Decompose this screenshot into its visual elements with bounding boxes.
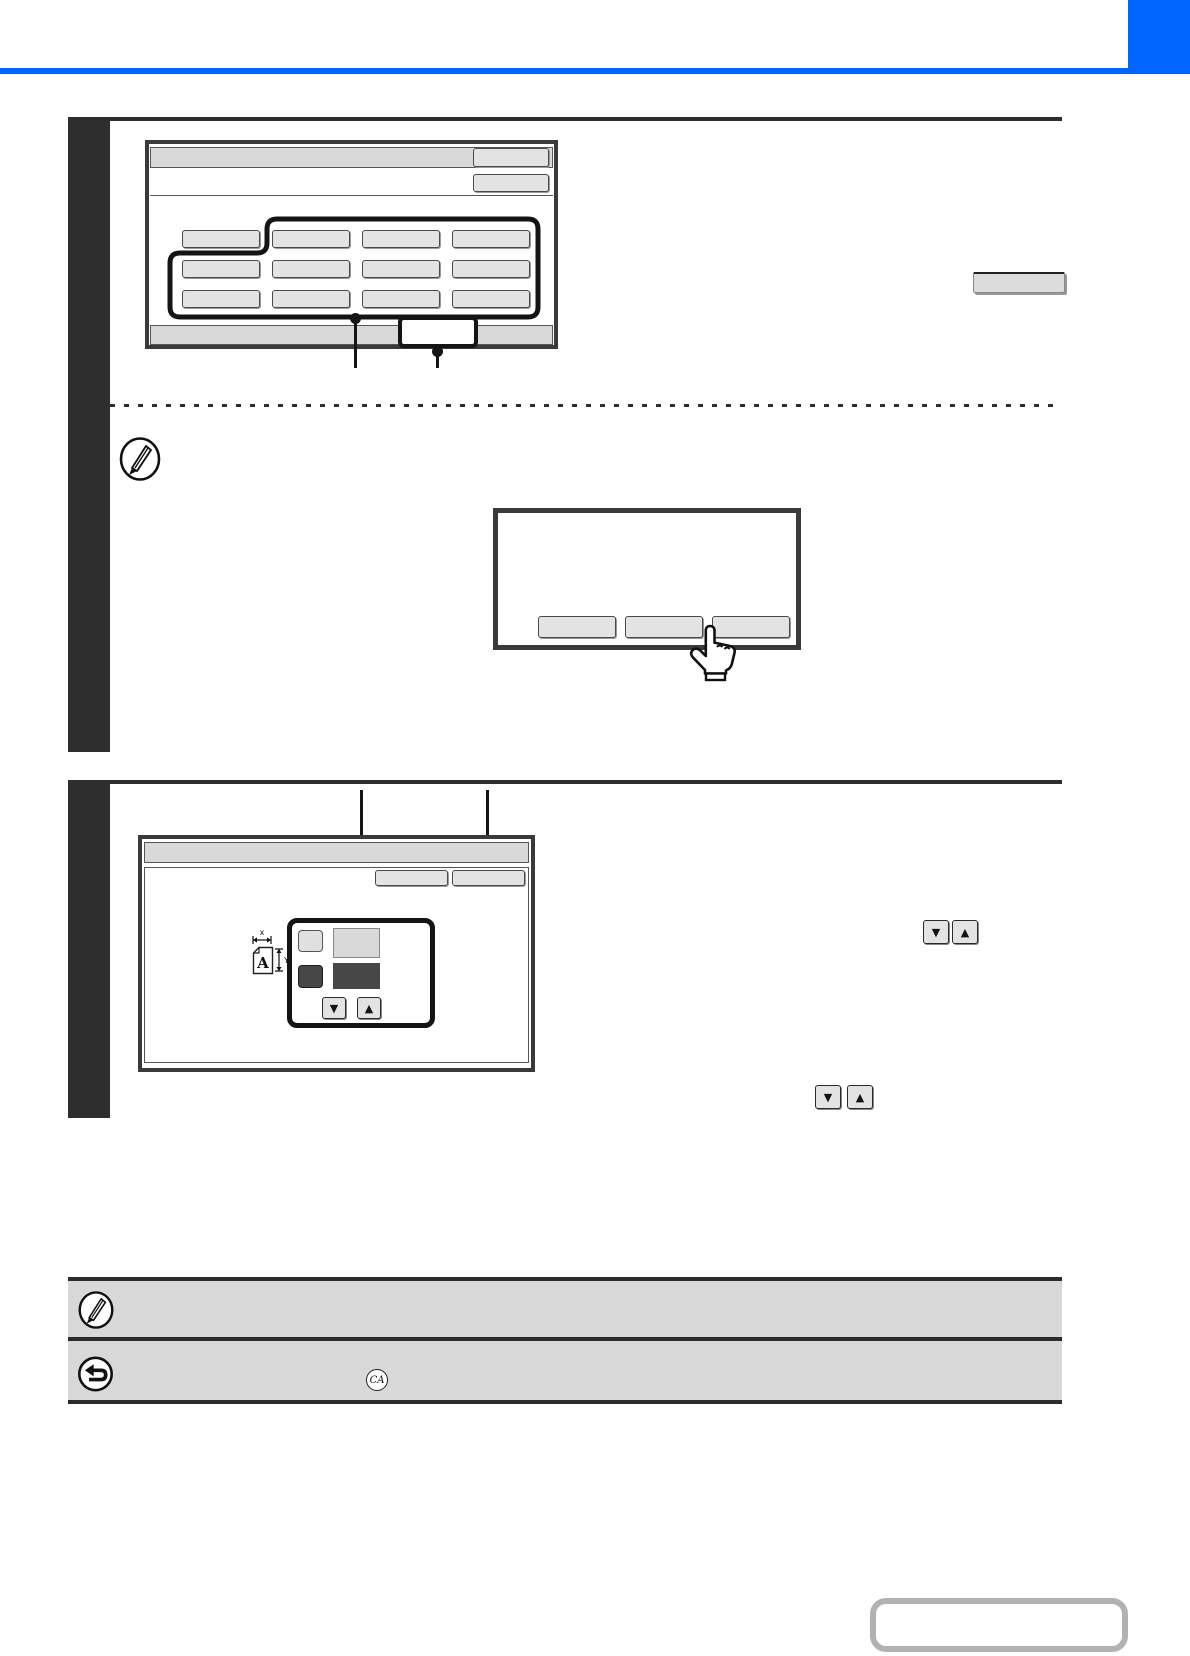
clear-all-label: CA	[370, 1375, 385, 1386]
screen-footer-bar	[150, 325, 553, 345]
message-dialog	[493, 508, 801, 650]
pencil-icon	[78, 1291, 114, 1329]
down-arrow-icon: ▼	[932, 927, 940, 938]
header-accent-rule	[0, 68, 1190, 74]
callout-line-grid	[354, 318, 357, 368]
down-arrow-icon: ▼	[330, 1003, 338, 1014]
header-accent-tab	[1128, 0, 1190, 74]
step1-rule	[68, 117, 1062, 121]
inline-up-key-2: ▲	[847, 1085, 873, 1109]
titlebar-key[interactable]	[473, 148, 549, 167]
touchscreen-size-entry: x A Y ▼ ▲	[138, 835, 535, 1072]
return-arrow-icon	[77, 1355, 114, 1393]
up-arrow-icon: ▲	[365, 1003, 373, 1014]
manual-page: x A Y ▼ ▲ ▼	[0, 0, 1190, 1656]
step2-rule	[68, 780, 1062, 784]
up-arrow-icon: ▲	[856, 1092, 864, 1103]
document-xy-icon: x A Y	[248, 926, 292, 978]
screen2-titlebar	[144, 842, 529, 863]
inline-key-reference	[973, 272, 1065, 293]
x-select-key[interactable]	[298, 930, 323, 952]
header-key-2[interactable]	[452, 870, 525, 886]
note-dashed-divider	[110, 404, 1058, 407]
down-arrow-icon: ▼	[824, 1092, 832, 1103]
y-value-display	[333, 963, 380, 989]
increase-key[interactable]: ▲	[357, 997, 381, 1019]
hand-tap-icon	[684, 624, 738, 682]
inline-down-key-2: ▼	[815, 1085, 841, 1109]
note-bar-1	[68, 1277, 1062, 1341]
inline-up-key-1: ▲	[952, 920, 978, 944]
header-key-1[interactable]	[375, 870, 448, 886]
dialog-keybar	[538, 616, 790, 638]
dialog-key[interactable]	[538, 616, 616, 638]
svg-text:x: x	[260, 928, 265, 937]
note-bar-2	[68, 1341, 1062, 1404]
inline-down-key-1: ▼	[923, 920, 949, 944]
y-select-key[interactable]	[298, 965, 323, 988]
step1-indicator	[68, 121, 110, 752]
callout-line-key	[436, 351, 439, 368]
svg-text:A: A	[256, 954, 269, 972]
up-arrow-icon: ▲	[961, 927, 969, 938]
footer-key-highlight[interactable]	[398, 316, 478, 348]
contents-nav-box[interactable]	[870, 1598, 1128, 1652]
x-value-display	[333, 928, 380, 958]
pencil-icon	[119, 437, 161, 481]
decrease-key[interactable]: ▼	[322, 997, 346, 1019]
clear-all-key-badge: CA	[366, 1369, 388, 1391]
size-entry-highlight-box: ▼ ▲	[287, 918, 435, 1028]
highlight-outline	[164, 214, 544, 329]
subbar-key[interactable]	[473, 174, 549, 192]
step2-indicator	[68, 784, 110, 1118]
